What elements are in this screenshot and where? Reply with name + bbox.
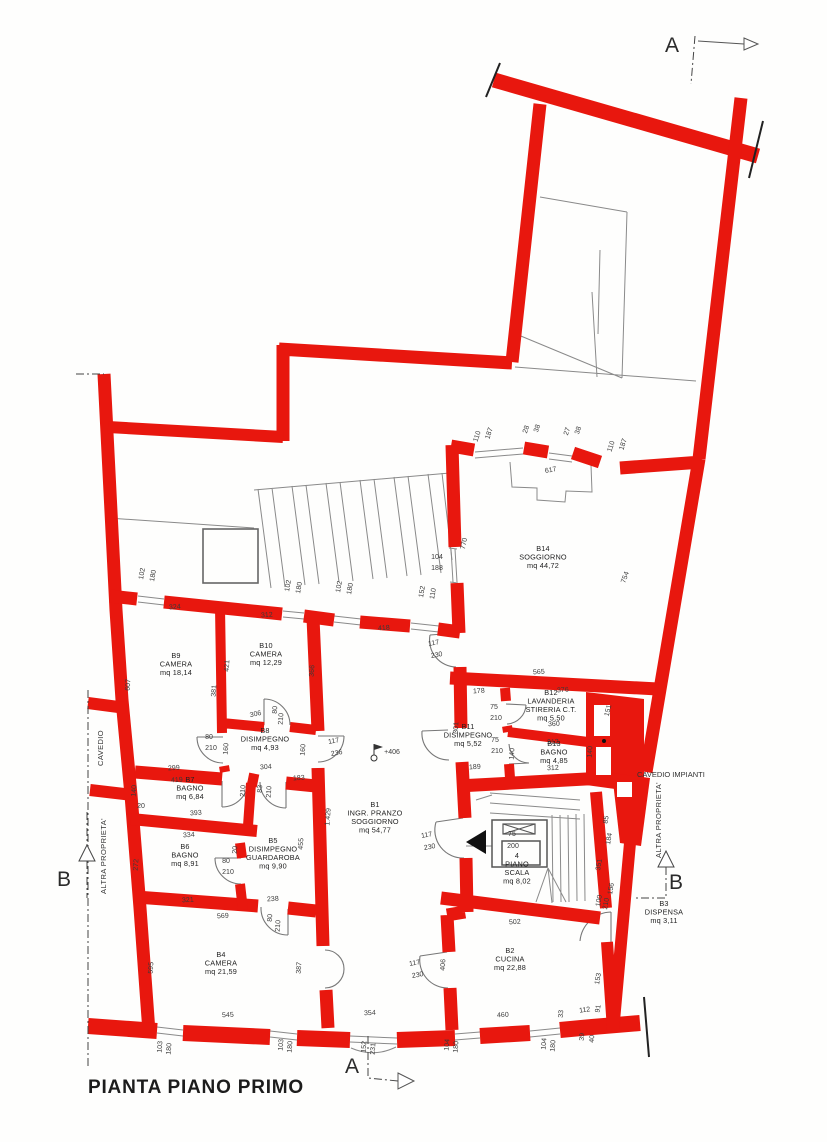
- altra-proprieta-right-label: ALTRA PROPRIETA': [654, 782, 663, 858]
- dimension-label: +406: [384, 749, 400, 756]
- room-label-B3: mq 3,11: [650, 916, 677, 925]
- dimension-label: 178: [473, 688, 485, 696]
- dimension-label: 80: [222, 858, 230, 865]
- cavedio-impianti-label: CAVEDIO IMPIANTI: [637, 770, 705, 779]
- dimension-label: 180: [295, 581, 304, 594]
- altra-proprieta-left-label: ALTRA PROPRIETA': [99, 818, 108, 894]
- shaft-dot: [602, 739, 606, 743]
- dimension-label: 595: [148, 962, 156, 974]
- room-label-B10: mq 12,29: [250, 658, 282, 667]
- dimension-label: 210: [266, 786, 274, 798]
- dimension-label: 180: [287, 1041, 295, 1053]
- dimension-label: 210: [275, 920, 283, 932]
- room-label-PS: mq 8,02: [503, 877, 531, 886]
- dimension-label: 152: [418, 585, 427, 598]
- dimension-label: 27: [563, 427, 572, 437]
- dimension-label: 312: [261, 612, 273, 620]
- dimension-label: 80: [272, 706, 280, 714]
- door-b11-b12: [506, 704, 526, 724]
- dimension-label: 419: [171, 777, 183, 785]
- dimension-label: 366: [309, 665, 317, 677]
- shaft-cavedio-impianti: [617, 782, 632, 797]
- floor-plan-page: A A B B CAVEDIO ALTRA PROPRIETA' ALTRA P…: [0, 0, 827, 1142]
- room-label-B8: mq 4,93: [251, 743, 279, 752]
- dimension-label: 20: [137, 803, 145, 810]
- dimension-label: 180: [149, 569, 158, 582]
- dimension-label: 617: [544, 466, 557, 475]
- dimension-label: 33: [558, 1010, 566, 1018]
- level-mark-icon: [371, 755, 377, 761]
- dimension-label: 140: [587, 746, 595, 758]
- dimension-label: 230: [411, 971, 424, 980]
- room-label-B4: mq 21,59: [205, 967, 237, 976]
- dimension-label: 38: [533, 424, 542, 434]
- room-label-B2: mq 22,88: [494, 963, 526, 972]
- dimension-label: 140: [131, 785, 139, 797]
- dimension-label: 565: [533, 669, 545, 677]
- dimension-label: 210: [240, 785, 248, 797]
- section-marker-b-right: B: [669, 871, 683, 894]
- dimension-label: 183: [293, 775, 305, 783]
- dimension-label: 75: [491, 737, 499, 744]
- dimension-label: 569: [217, 913, 229, 921]
- dimension-label: 160: [223, 743, 231, 755]
- dimension-label: 236: [330, 749, 343, 758]
- dimension-label: 210: [205, 745, 217, 752]
- terrace-skylight-lines: [108, 473, 452, 588]
- dimension-label: 83: [257, 785, 265, 793]
- dimension-label: 272: [133, 859, 141, 871]
- dimension-label: 80: [267, 914, 275, 922]
- dimension-label: 231: [370, 1043, 378, 1055]
- dimension-label: 102: [335, 580, 344, 593]
- dimension-label: 304: [260, 764, 272, 772]
- dimension-label: 418: [378, 625, 390, 633]
- cavedio-label: CAVEDIO: [96, 730, 105, 766]
- dimension-label: 301: [453, 722, 461, 734]
- dimension-label: 20: [232, 846, 240, 854]
- shaft-opening-2: [596, 747, 611, 775]
- dimension-label: 102: [284, 579, 293, 592]
- dimension-label: 91: [594, 1004, 602, 1013]
- dimension-label: 238: [267, 896, 279, 904]
- room-label-B7: mq 6,84: [176, 792, 204, 801]
- dimension-label: 387: [296, 962, 304, 974]
- dimension-label: 117: [409, 959, 421, 968]
- room-label-B13: mq 4,85: [540, 756, 568, 765]
- room-label-B11: mq 5,52: [454, 739, 482, 748]
- level-mark-flag: [374, 744, 383, 750]
- dimension-label: 545: [222, 1012, 234, 1020]
- dimension-label: 180: [550, 1040, 558, 1052]
- dimension-label: 75: [490, 704, 498, 711]
- dimension-label: 104: [541, 1038, 549, 1050]
- dimension-label: 189: [469, 764, 481, 772]
- dimension-label: 152: [361, 1041, 369, 1053]
- dimension-label: 117: [328, 737, 340, 746]
- dimension-label: 85: [602, 815, 610, 824]
- dimension-label: 210: [490, 715, 502, 722]
- dimension-label: 406: [440, 959, 448, 971]
- dimension-label: 103: [278, 1039, 286, 1051]
- dimension-label: 607: [125, 679, 133, 691]
- dimension-label: 1.429: [324, 808, 332, 826]
- dimension-label: 104: [444, 1039, 452, 1051]
- dimension-label: 334: [183, 832, 195, 840]
- dimension-label: 354: [364, 1010, 376, 1018]
- section-marker-a-top: A: [665, 34, 679, 57]
- dimension-label: 321: [182, 897, 194, 905]
- dimension-label: 770: [460, 537, 469, 550]
- walls-interior-12: [88, 427, 630, 1032]
- dimension-labels-layer: 1101872838273811018761710418877075410218…: [125, 424, 631, 1055]
- dimension-label: 110: [473, 430, 483, 443]
- dimension-label: 460: [497, 1012, 509, 1020]
- annex-interior-lines: [515, 197, 696, 381]
- dimension-label: 156: [607, 882, 616, 895]
- dimension-label: 102: [138, 567, 147, 580]
- room-label-B14: mq 44,72: [527, 561, 559, 570]
- room-label-B1: mq 54,77: [359, 826, 391, 835]
- dimension-label: 39: [579, 1033, 587, 1041]
- plan-title: PIANTA PIANO PRIMO: [88, 1077, 304, 1098]
- wall-bottom-outer: [88, 1023, 640, 1040]
- dimension-label: 210: [491, 748, 503, 755]
- dimension-label: 299: [168, 765, 180, 773]
- dimension-label: 38: [574, 426, 583, 436]
- dimension-label: 117: [428, 639, 440, 648]
- dimension-label: 104: [431, 554, 443, 561]
- dimension-label: 188: [431, 565, 443, 572]
- dimension-label: 28: [522, 425, 531, 435]
- dimension-label: 754: [620, 571, 631, 584]
- dimension-label: 312: [547, 765, 559, 773]
- dimension-label: 180: [346, 582, 355, 595]
- dimension-label: 187: [484, 427, 494, 440]
- dimension-label: 306: [249, 710, 262, 719]
- dimension-label: 117: [421, 831, 433, 840]
- door-entrance-b1: [435, 818, 464, 858]
- dimension-label: 110: [607, 440, 617, 453]
- walls-outer-main: [104, 98, 741, 1032]
- dimension-label: 80: [205, 734, 213, 741]
- dimension-label: 140: [509, 748, 517, 760]
- dimension-label: 180: [166, 1043, 174, 1055]
- section-marker-a-bottom: A: [345, 1055, 359, 1078]
- dash-dot-lines: [76, 36, 695, 1081]
- entrance-triangle: [466, 830, 486, 854]
- dimension-label: 75: [508, 831, 516, 838]
- section-a-top-arrowhead: [744, 38, 758, 50]
- dimension-label: 230: [423, 843, 436, 852]
- dimension-label: 324: [169, 604, 181, 612]
- dimension-label: 360: [548, 721, 560, 729]
- dimension-label: 230: [430, 651, 443, 660]
- room-label-B6: mq 8,91: [171, 859, 199, 868]
- dimension-label: 110: [429, 588, 438, 600]
- dimension-label: 40: [589, 1035, 597, 1043]
- floor-plan-drawing: A A B B CAVEDIO ALTRA PROPRIETA' ALTRA P…: [0, 0, 827, 1142]
- dimension-label: 187: [618, 438, 628, 451]
- door-b14-b1: [430, 633, 456, 667]
- dimension-label: 381: [211, 685, 219, 697]
- dimension-label: 393: [190, 810, 202, 818]
- section-marker-b-left: B: [57, 868, 71, 891]
- room-label-B9: mq 18,14: [160, 668, 192, 677]
- section-a-bottom-arrowhead: [398, 1073, 414, 1089]
- terrace-shed-outline: [203, 529, 258, 583]
- dimension-label: 376: [557, 687, 569, 695]
- room-label-B5: mq 9,90: [259, 862, 287, 871]
- dimension-label: 180: [453, 1041, 461, 1053]
- dimension-label: 200: [507, 843, 519, 850]
- dimension-label: 103: [157, 1041, 165, 1053]
- dimension-label: 421: [224, 660, 232, 672]
- dimension-label: 210: [222, 869, 234, 876]
- dimension-label: 210: [602, 897, 611, 910]
- dimension-label: 160: [300, 744, 308, 756]
- dimension-label: 455: [298, 838, 306, 850]
- double-door-b4-b1: [325, 950, 344, 988]
- dimension-label: 184: [605, 832, 614, 845]
- dimension-label: 153: [594, 972, 603, 985]
- section-b-left-arrowhead: [79, 845, 95, 861]
- dimension-label: 112: [579, 1006, 591, 1014]
- static-labels: A A B B CAVEDIO ALTRA PROPRIETA' ALTRA P…: [57, 34, 705, 1098]
- section-arrow-lines: [698, 41, 744, 44]
- dimension-label: 502: [509, 919, 521, 927]
- dimension-label: 210: [278, 713, 286, 725]
- dimension-label: 312: [547, 739, 559, 747]
